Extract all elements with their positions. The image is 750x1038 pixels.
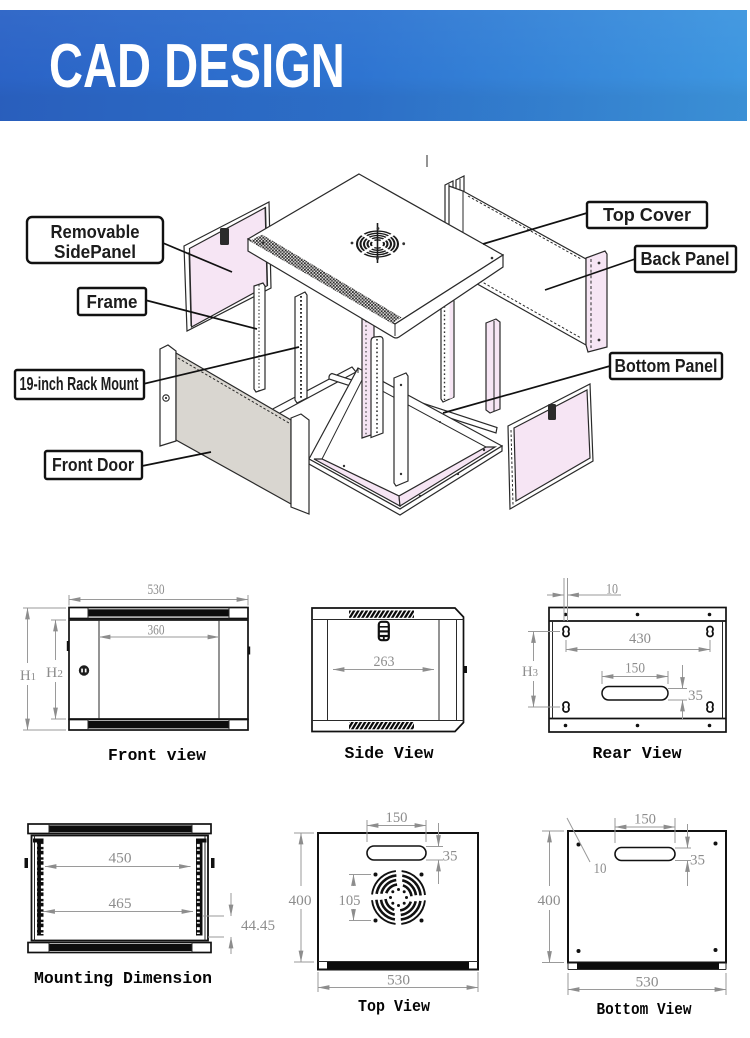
svg-text:Top View: Top View: [358, 998, 431, 1017]
svg-text:10: 10: [594, 861, 607, 877]
svg-text:530: 530: [148, 582, 165, 598]
svg-text:35: 35: [688, 688, 703, 704]
svg-text:19-inch Rack Mount: 19-inch Rack Mount: [20, 374, 139, 394]
svg-text:35: 35: [690, 853, 705, 869]
svg-text:530: 530: [636, 975, 659, 991]
svg-text:Bottom Panel: Bottom Panel: [615, 356, 718, 376]
svg-text:Top Cover: Top Cover: [603, 205, 691, 225]
svg-text:450: 450: [109, 851, 132, 867]
svg-text:H1: H1: [20, 668, 36, 684]
svg-text:150: 150: [634, 812, 656, 828]
svg-text:Mounting Dimension: Mounting Dimension: [34, 970, 212, 989]
svg-text:400: 400: [538, 893, 561, 909]
svg-text:400: 400: [289, 893, 312, 909]
svg-text:SidePanel: SidePanel: [54, 242, 136, 262]
svg-text:Bottom View: Bottom View: [597, 1001, 693, 1020]
svg-text:Front Door: Front Door: [52, 455, 134, 475]
svg-text:Back Panel: Back Panel: [641, 249, 730, 269]
svg-text:150: 150: [386, 810, 408, 826]
svg-text:Frame: Frame: [87, 292, 138, 312]
svg-text:150: 150: [625, 661, 645, 677]
svg-text:430: 430: [629, 631, 651, 647]
svg-text:105: 105: [339, 893, 361, 909]
svg-text:263: 263: [374, 654, 395, 670]
svg-text:360: 360: [148, 623, 165, 639]
svg-text:530: 530: [387, 973, 410, 989]
svg-text:Side View: Side View: [345, 745, 435, 764]
svg-text:Rear View: Rear View: [593, 745, 683, 764]
svg-text:Front view: Front view: [108, 747, 207, 766]
svg-text:H3: H3: [522, 664, 538, 680]
svg-text:465: 465: [109, 896, 132, 912]
svg-text:H2: H2: [46, 665, 63, 681]
svg-text:35: 35: [443, 849, 458, 865]
svg-text:Removable: Removable: [51, 222, 140, 242]
svg-text:10: 10: [606, 582, 618, 598]
svg-text:44.45: 44.45: [241, 918, 275, 934]
